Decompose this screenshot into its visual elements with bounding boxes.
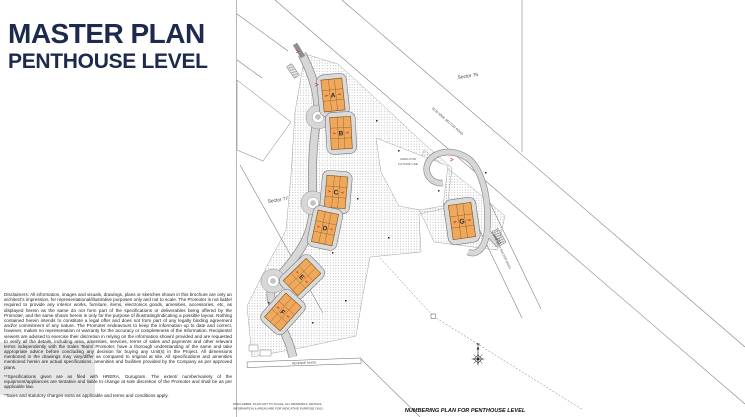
sector-76-label: Sector 76 — [457, 72, 479, 81]
revenue-rasta-label: REVENUE RASTA — [292, 360, 316, 365]
sector-road-60m-label: 60 M WIDE SECTOR ROAD — [431, 106, 465, 136]
building-label: B — [339, 130, 344, 137]
site-plan-drawing: A B C D E — [0, 0, 745, 417]
building-label: C — [333, 189, 339, 196]
north-label: N — [477, 342, 480, 347]
building-a: A — [316, 73, 350, 118]
north-arrowhead — [477, 346, 480, 350]
neighbor-parcel — [237, 80, 291, 161]
road24-edge-2 — [489, 201, 541, 309]
entry-marker-2 — [450, 158, 453, 161]
sector-77-label: Sector 77 — [267, 196, 289, 205]
plan-disclaimer-line1: DISCLAIMER: PLAN NOT TO SCALE. ALL DRAWI… — [233, 402, 322, 406]
parcel-line-1 — [237, 14, 288, 51]
parcel-line-2 — [237, 60, 262, 78]
future-use-label-line2: FUTURE USE — [398, 162, 418, 166]
compass-star — [471, 352, 485, 366]
brochure-page: { "header": { "title_line1": "MASTER PLA… — [0, 0, 745, 417]
plan-disclaimer-line2: INFORMATION & AREAS ARE FOR INDICATIVE P… — [233, 407, 324, 411]
crossing-hatch-1 — [287, 64, 300, 79]
future-use-label-line1: AREA FOR — [400, 157, 416, 161]
compass-rose: N — [471, 342, 485, 367]
building-g: G — [443, 196, 481, 245]
revenue-rasta-strip: REVENUE RASTA — [247, 358, 361, 367]
plan-caption: NUMBERING PLAN FOR PENTHOUSE LEVEL — [405, 408, 526, 414]
building-b: B — [325, 111, 357, 155]
survey-marker — [431, 314, 436, 319]
survey-dashed-lines — [380, 258, 583, 410]
road-entry-stub — [295, 44, 303, 57]
